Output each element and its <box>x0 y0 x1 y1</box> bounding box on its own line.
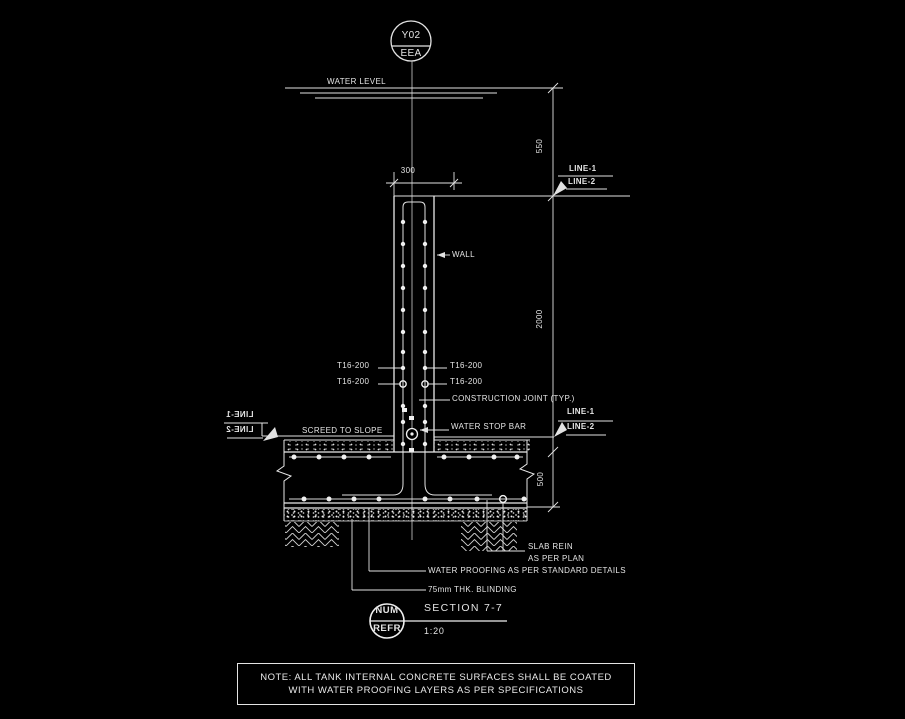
water-level-label: WATER LEVEL <box>327 78 386 87</box>
slab-rein-label-line2: AS PER PLAN <box>528 555 584 564</box>
blinding-texture <box>284 509 527 521</box>
rebar-leaders <box>378 368 447 384</box>
construction-joint-label: CONSTRUCTION JOINT (TYP.) <box>452 395 575 404</box>
note-line-1: NOTE: ALL TANK INTERNAL CONCRETE SURFACE… <box>260 672 612 683</box>
dim-300: 300 <box>393 167 423 176</box>
line1-label-top-right: LINE-1 <box>569 165 596 174</box>
rebar-label-left-upper: T16-200 <box>337 362 369 371</box>
title-bubble-top: NUM <box>369 606 405 616</box>
note-line-2: WITH WATER PROOFING LAYERS AS PER SPECIF… <box>289 685 584 696</box>
line2-label-top-right: LINE-2 <box>568 178 595 187</box>
slab-rein-label-line1: SLAB REIN <box>528 543 573 552</box>
soil-hatch-left <box>285 522 339 547</box>
dim-2000: 2000 <box>536 304 546 334</box>
rebar-label-right-upper: T16-200 <box>450 362 482 371</box>
line2-label-left-mirrored: LINE-2 <box>226 426 253 435</box>
blinding-label: 75mm THK. BLINDING <box>428 586 517 595</box>
right-dimension-line <box>548 83 558 512</box>
wall-outline <box>394 196 434 452</box>
line1-label-mid-right: LINE-1 <box>567 408 594 417</box>
top-reference-zone: EEA <box>393 48 429 59</box>
rebar-label-right-lower: T16-200 <box>450 378 482 387</box>
cad-drawing-canvas: Y02 EEA WATER LEVEL 550 2000 500 300 LIN… <box>0 0 905 719</box>
dim-500: 500 <box>537 464 547 494</box>
wall-rebar-dots <box>400 220 428 446</box>
screed-texture-right <box>434 441 530 451</box>
section-title: SECTION 7-7 <box>424 603 503 615</box>
water-level-symbol <box>285 88 563 98</box>
wall-label: WALL <box>452 251 475 260</box>
section-scale: 1:20 <box>424 627 445 637</box>
dim-550: 550 <box>536 131 546 161</box>
slab-rebar-lines <box>289 457 523 499</box>
rebar-label-left-lower: T16-200 <box>337 378 369 387</box>
soil-hatch-right <box>461 522 517 551</box>
wall-rebar-bars <box>342 202 492 495</box>
blinding-leader <box>352 519 426 590</box>
water-stop-bar-label: WATER STOP BAR <box>451 423 526 432</box>
line1-label-left-mirrored: LINE-1 <box>226 411 253 420</box>
title-bubble-bottom: REFR <box>369 624 405 634</box>
top-reference-code: Y02 <box>393 30 429 41</box>
line2-label-mid-right: LINE-2 <box>567 423 594 432</box>
note-box: NOTE: ALL TANK INTERNAL CONCRETE SURFACE… <box>237 663 635 705</box>
water-proofing-label: WATER PROOFING AS PER STANDARD DETAILS <box>428 567 626 576</box>
screed-to-slope-label: SCREED TO SLOPE <box>302 427 383 436</box>
wall-label-leader <box>437 252 450 258</box>
screed-texture-left <box>284 441 394 451</box>
